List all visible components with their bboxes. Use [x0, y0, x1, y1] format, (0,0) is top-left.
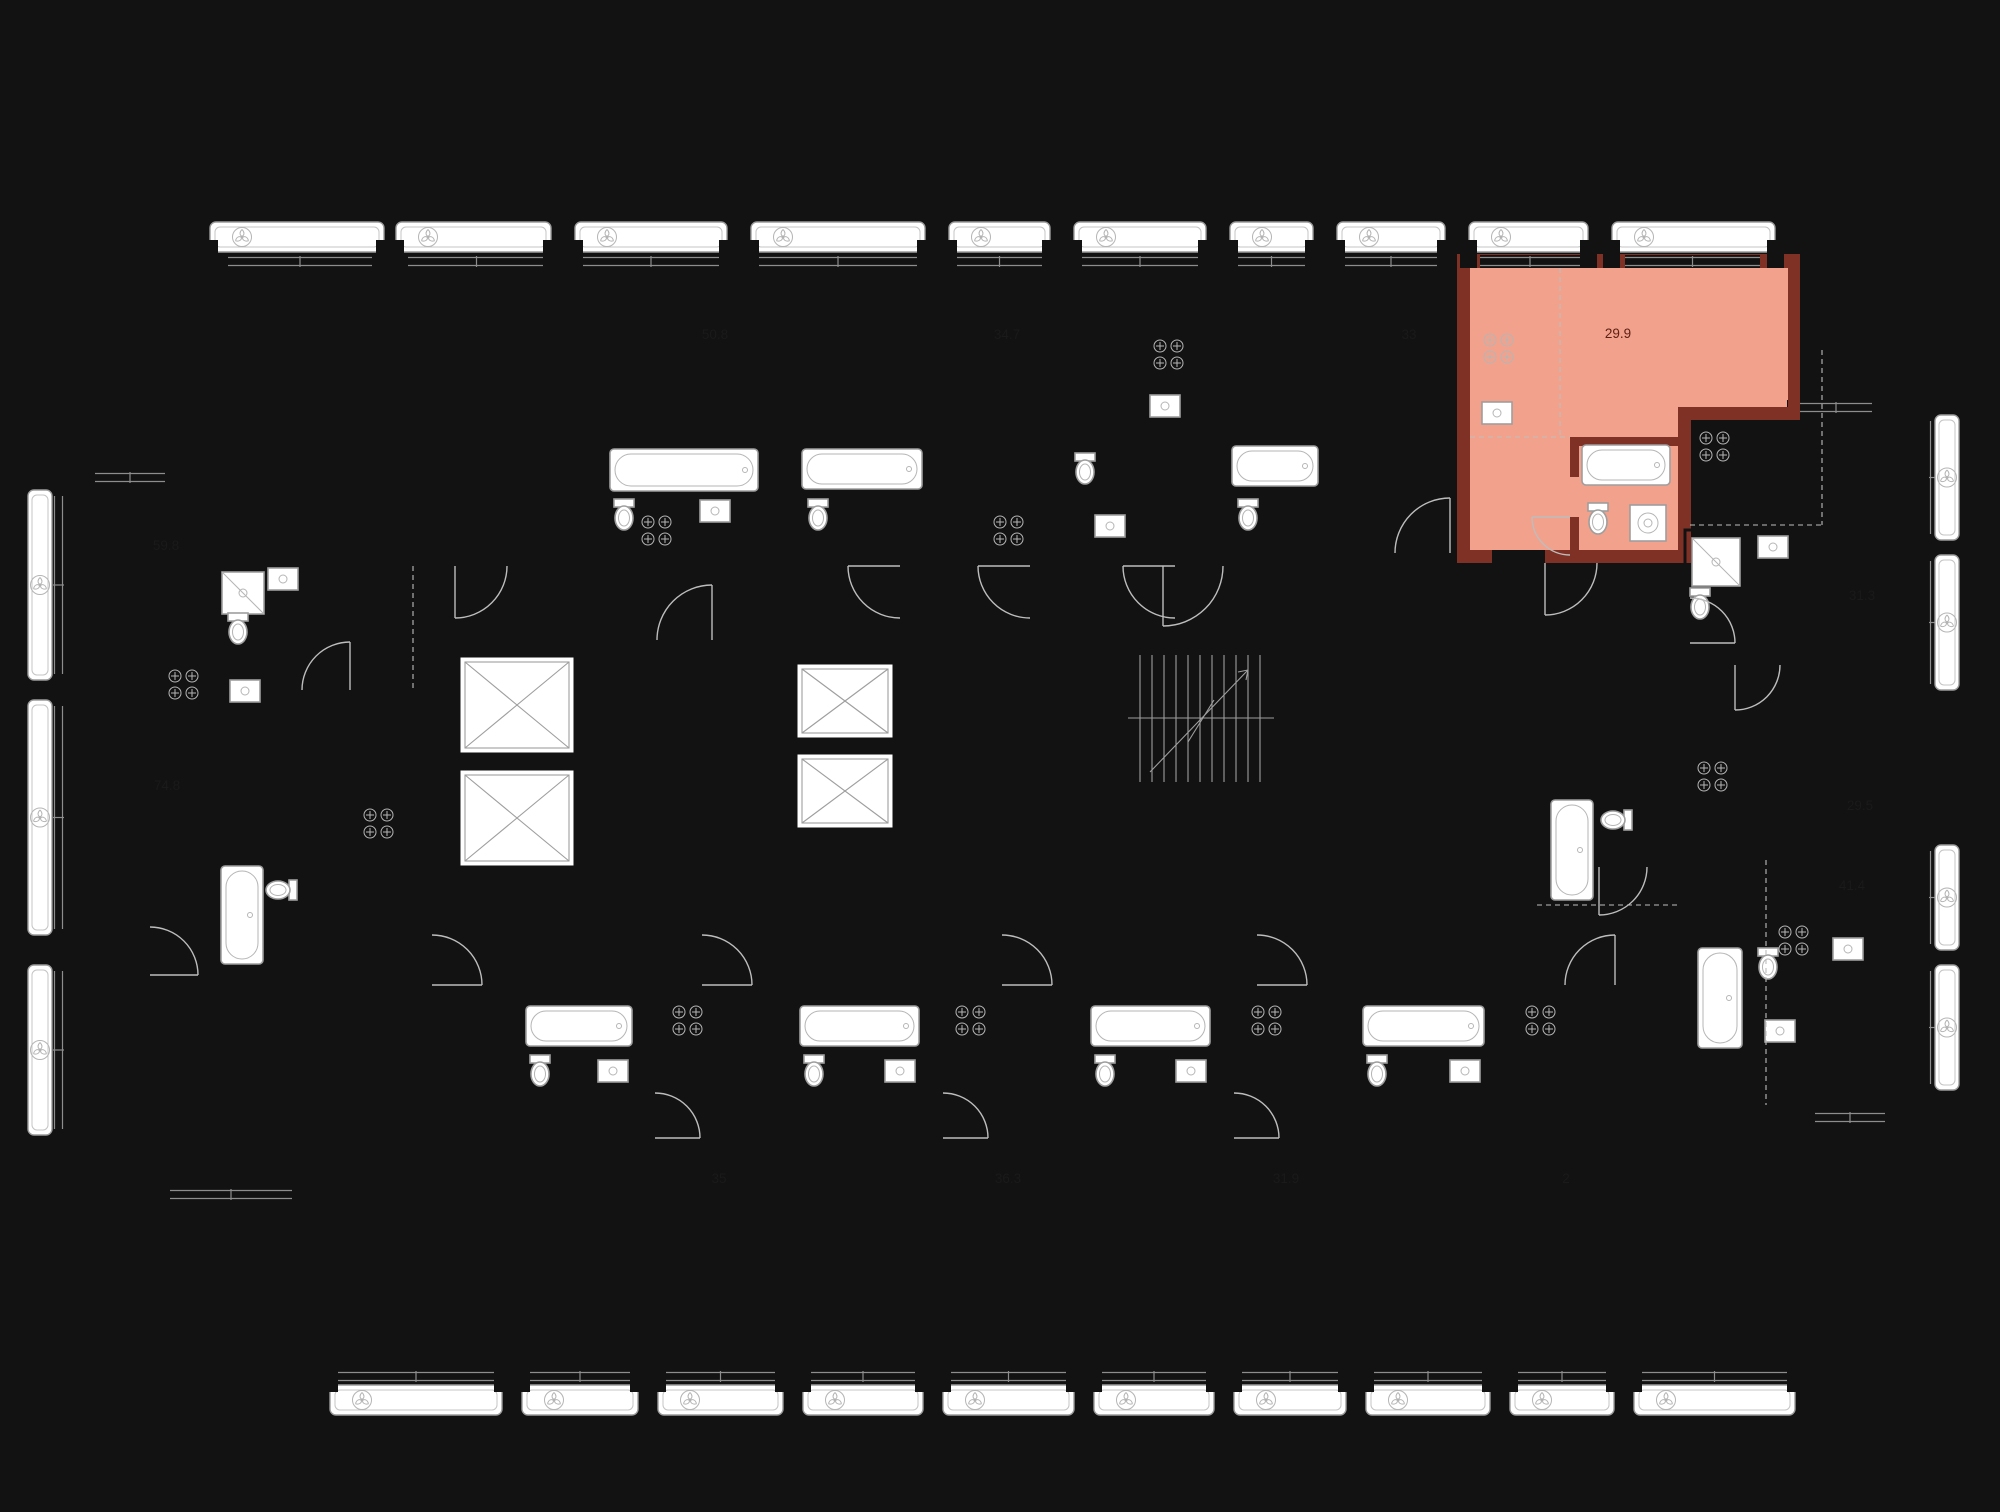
wall [1460, 240, 1477, 268]
wall [934, 1362, 951, 1392]
wall [649, 1362, 666, 1392]
bathtub-icon [1698, 948, 1742, 1048]
wall [775, 1362, 792, 1392]
wall [1357, 1362, 1374, 1392]
sink-icon [1833, 938, 1863, 960]
wall [1537, 735, 1562, 747]
wall [563, 268, 575, 555]
sink-icon [1176, 1060, 1206, 1082]
wall [1878, 392, 1940, 422]
toilet-icon [530, 1055, 550, 1086]
wall [298, 1158, 324, 1382]
balcony [943, 1385, 1074, 1415]
wall [195, 254, 209, 470]
wall [1030, 553, 1120, 566]
toilet-icon [1095, 1055, 1115, 1086]
wall [387, 240, 404, 268]
room-area-label: 59.8 [153, 538, 179, 553]
wall [794, 1362, 811, 1392]
sink-icon [1450, 1060, 1480, 1082]
highlighted-apartment-wall [1678, 407, 1800, 420]
washer-icon [1630, 505, 1666, 541]
sink-icon [598, 1060, 628, 1082]
room-area-label: 2 [1562, 1171, 1570, 1186]
toilet-icon [1601, 810, 1632, 830]
wall [1652, 855, 1778, 867]
wall [782, 835, 918, 845]
wall [1580, 240, 1597, 268]
highlighted-apartment-wall [1457, 254, 1470, 563]
wall [384, 553, 396, 653]
wall [1221, 240, 1238, 268]
wall [1295, 645, 1365, 655]
wall [1042, 240, 1059, 268]
wall [1537, 748, 1549, 1110]
toilet-icon [1238, 499, 1258, 530]
wall [1437, 240, 1454, 268]
sink-icon [885, 1060, 915, 1082]
wall [494, 1362, 511, 1392]
sink-icon [1765, 1020, 1795, 1042]
toilet-icon [1588, 503, 1608, 534]
wall [150, 1145, 162, 1200]
balcony [1234, 1385, 1346, 1415]
wall [1198, 240, 1215, 268]
room-area-label: 41.4 [1839, 878, 1866, 893]
wall [757, 985, 1002, 998]
elevator-icon [458, 655, 576, 755]
sink-icon [1095, 515, 1125, 537]
room-area-label: 33 [1401, 327, 1416, 342]
wall [1625, 1362, 1642, 1392]
wall [1787, 1362, 1804, 1392]
bathtub-icon [526, 1006, 632, 1046]
wall [384, 700, 396, 860]
balcony [210, 222, 384, 252]
bathtub-icon [1091, 1006, 1210, 1046]
wall [1678, 690, 1690, 735]
toilet-icon [808, 499, 828, 530]
wall [1295, 645, 1305, 810]
wall [1338, 1362, 1355, 1392]
highlighted-apartment-wall [1570, 517, 1579, 553]
toilet-icon [614, 499, 634, 530]
wall [630, 1362, 647, 1392]
balcony [1612, 222, 1775, 252]
wall [487, 985, 702, 998]
wall [1066, 1362, 1083, 1392]
wall [445, 640, 918, 650]
sink-icon [700, 500, 730, 522]
wall [1603, 240, 1620, 268]
wall [908, 650, 918, 845]
wall [445, 640, 455, 885]
wall [1767, 240, 1784, 268]
wall [1220, 998, 1225, 1243]
elevator-icon [795, 752, 895, 830]
wall [1496, 998, 1508, 1370]
room-area-label: 29.5 [1847, 798, 1873, 813]
wall [1606, 1362, 1623, 1392]
balcony [1634, 1385, 1795, 1415]
wall [390, 268, 402, 555]
wall [201, 240, 218, 268]
wall [1355, 645, 1365, 810]
wall [1325, 268, 1337, 555]
wall [1450, 553, 1457, 566]
toilet-icon [1075, 453, 1095, 484]
wall [641, 998, 646, 1243]
wall [65, 975, 150, 987]
wall [1206, 1362, 1223, 1392]
wall [1095, 640, 1105, 795]
floor-plan: 29.950.834.73359.874.831.329.541.43536.3… [0, 0, 2000, 1512]
bathtub-icon [1582, 445, 1670, 485]
balcony [1510, 1385, 1614, 1415]
wall [52, 1145, 162, 1158]
wall [384, 905, 396, 987]
room-area-label: 35 [711, 1171, 726, 1186]
wall [1085, 1362, 1102, 1392]
wall [929, 998, 934, 1243]
balcony [751, 222, 925, 252]
wall [1312, 985, 1537, 998]
elevator-icon [458, 768, 576, 868]
balcony [396, 222, 551, 252]
balcony [1469, 222, 1588, 252]
highlighted-apartment-wall [1788, 254, 1800, 414]
wall [321, 1362, 338, 1392]
bathtub-icon [1363, 1006, 1484, 1046]
wall [719, 240, 736, 268]
wall [1305, 240, 1322, 268]
bathtub-icon [1551, 800, 1593, 900]
bathtub-icon [221, 866, 263, 964]
toilet-icon [1367, 1055, 1387, 1086]
room-area-label: 34.7 [994, 327, 1020, 342]
wall [1057, 985, 1257, 998]
shower-icon [222, 572, 264, 614]
balcony [1366, 1385, 1490, 1415]
sink-icon [1482, 402, 1512, 424]
elevator-icon [795, 662, 895, 740]
shaft [1305, 655, 1355, 800]
wall [1095, 640, 1285, 650]
wall [52, 690, 300, 702]
balcony [658, 1385, 783, 1415]
wall [782, 650, 792, 845]
room-area-label: 31.3 [1849, 588, 1875, 603]
wall [742, 240, 759, 268]
room-area-label-highlighted[interactable]: 29.9 [1605, 326, 1631, 341]
wall [445, 875, 610, 885]
balcony [949, 222, 1050, 252]
wall [1612, 735, 1940, 747]
balcony [522, 1385, 638, 1415]
bathtub-icon [802, 449, 922, 489]
balcony [1337, 222, 1445, 252]
room-area-label: 50.8 [702, 327, 728, 342]
sink-icon [1150, 395, 1180, 417]
toilet-icon [228, 613, 248, 644]
wall [1501, 1362, 1518, 1392]
wall [940, 240, 957, 268]
wall [1095, 785, 1285, 795]
wall [1798, 1110, 1810, 1383]
bathtub-icon [610, 449, 758, 491]
room-area-label: 36.3 [995, 1171, 1021, 1186]
wall [1065, 240, 1082, 268]
wall [740, 268, 745, 555]
wall [543, 240, 560, 268]
wall [1328, 240, 1345, 268]
toilet-icon [1690, 588, 1710, 619]
wall [1620, 998, 1625, 1243]
sink-icon [1758, 536, 1788, 558]
floor-plan-page: 29.950.834.73359.874.831.329.541.43536.3… [0, 0, 2000, 1512]
wall [1295, 800, 1365, 810]
wall [915, 1362, 932, 1392]
bathtub-icon [1232, 446, 1318, 486]
highlighted-apartment-wall [1570, 437, 1579, 477]
toilet-icon [1758, 948, 1778, 979]
sink-icon [230, 680, 260, 702]
bathtub-icon [800, 1006, 919, 1046]
room-area-label: 31.9 [1273, 1171, 1299, 1186]
wall [513, 1362, 530, 1392]
balcony [1074, 222, 1206, 252]
wall [1482, 1362, 1499, 1392]
wall [510, 553, 845, 566]
shower-icon [1692, 538, 1740, 586]
wall [1175, 553, 1395, 566]
wall [917, 240, 934, 268]
room-area-label: 74.8 [154, 778, 180, 793]
wall [900, 553, 975, 566]
highlighted-apartment-wall [1457, 550, 1492, 563]
toilet-icon [804, 1055, 824, 1086]
toilet-icon [266, 880, 297, 900]
balcony [1094, 1385, 1214, 1415]
balcony [330, 1385, 502, 1415]
wall [566, 240, 583, 268]
wall [1225, 1362, 1242, 1392]
wall [937, 268, 949, 555]
wall [310, 985, 432, 998]
wall [590, 640, 600, 885]
sink-icon [268, 568, 298, 590]
highlighted-apartment-wall [1545, 550, 1691, 563]
balcony [803, 1385, 923, 1415]
